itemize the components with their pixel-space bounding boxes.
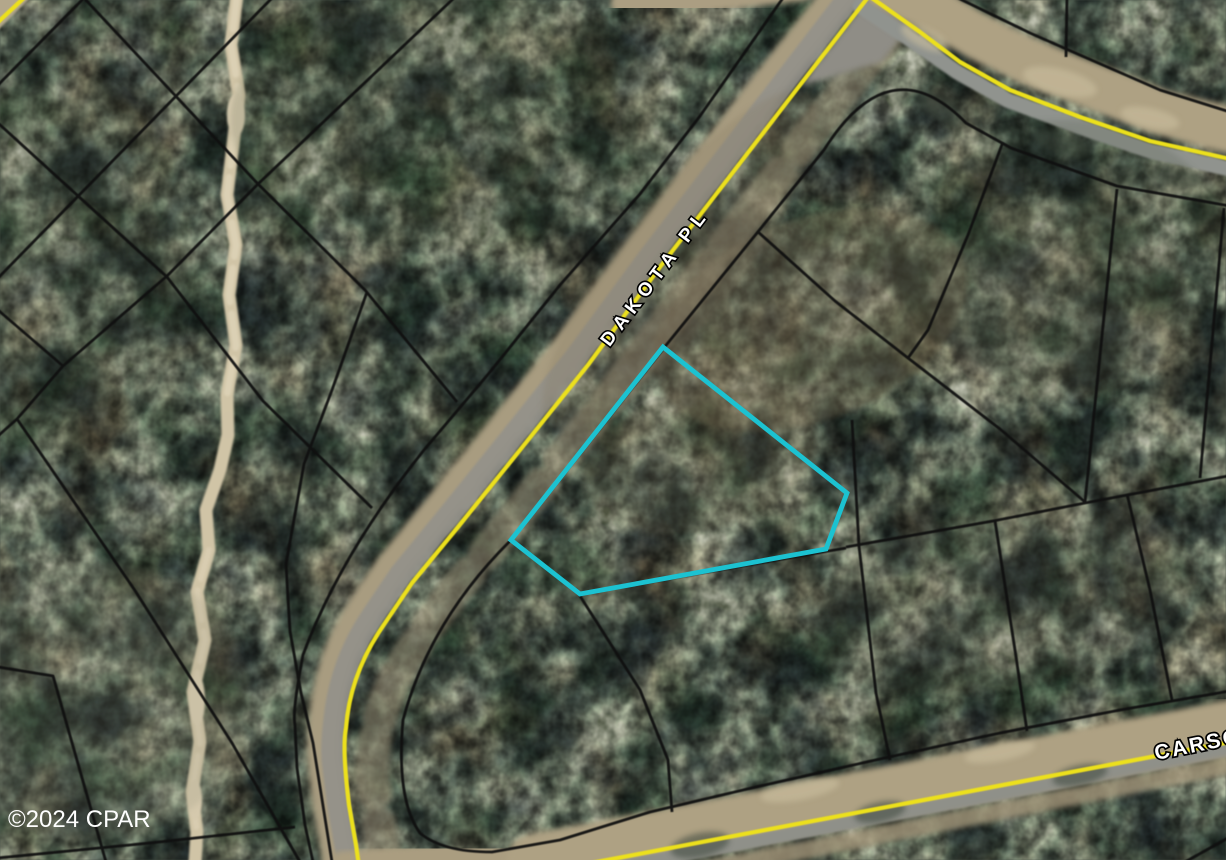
svg-text:©2024 CPAR: ©2024 CPAR [8,806,151,833]
